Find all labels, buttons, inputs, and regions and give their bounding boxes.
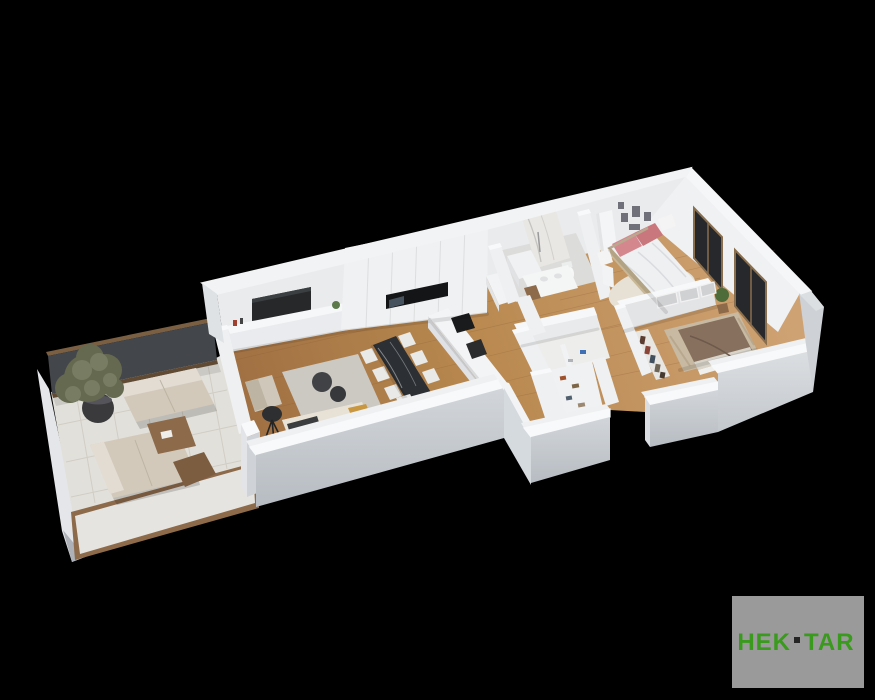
svg-text:TAR: TAR [804,629,855,656]
svg-text:HEK: HEK [737,629,791,656]
